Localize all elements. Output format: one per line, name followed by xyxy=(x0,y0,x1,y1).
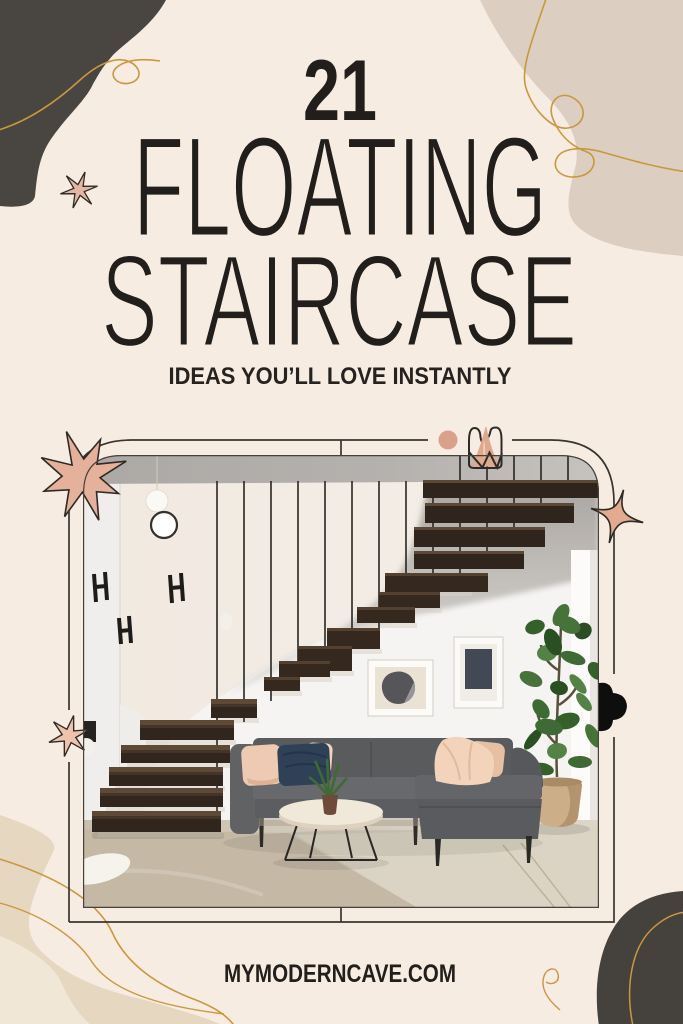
svg-text:STAIRCASE: STAIRCASE xyxy=(101,227,577,374)
svg-text:MYMODERNCAVE.COM: MYMODERNCAVE.COM xyxy=(224,960,456,988)
svg-text:IDEAS YOU’LL LOVE INSTANTLY: IDEAS YOU’LL LOVE INSTANTLY xyxy=(169,363,512,390)
